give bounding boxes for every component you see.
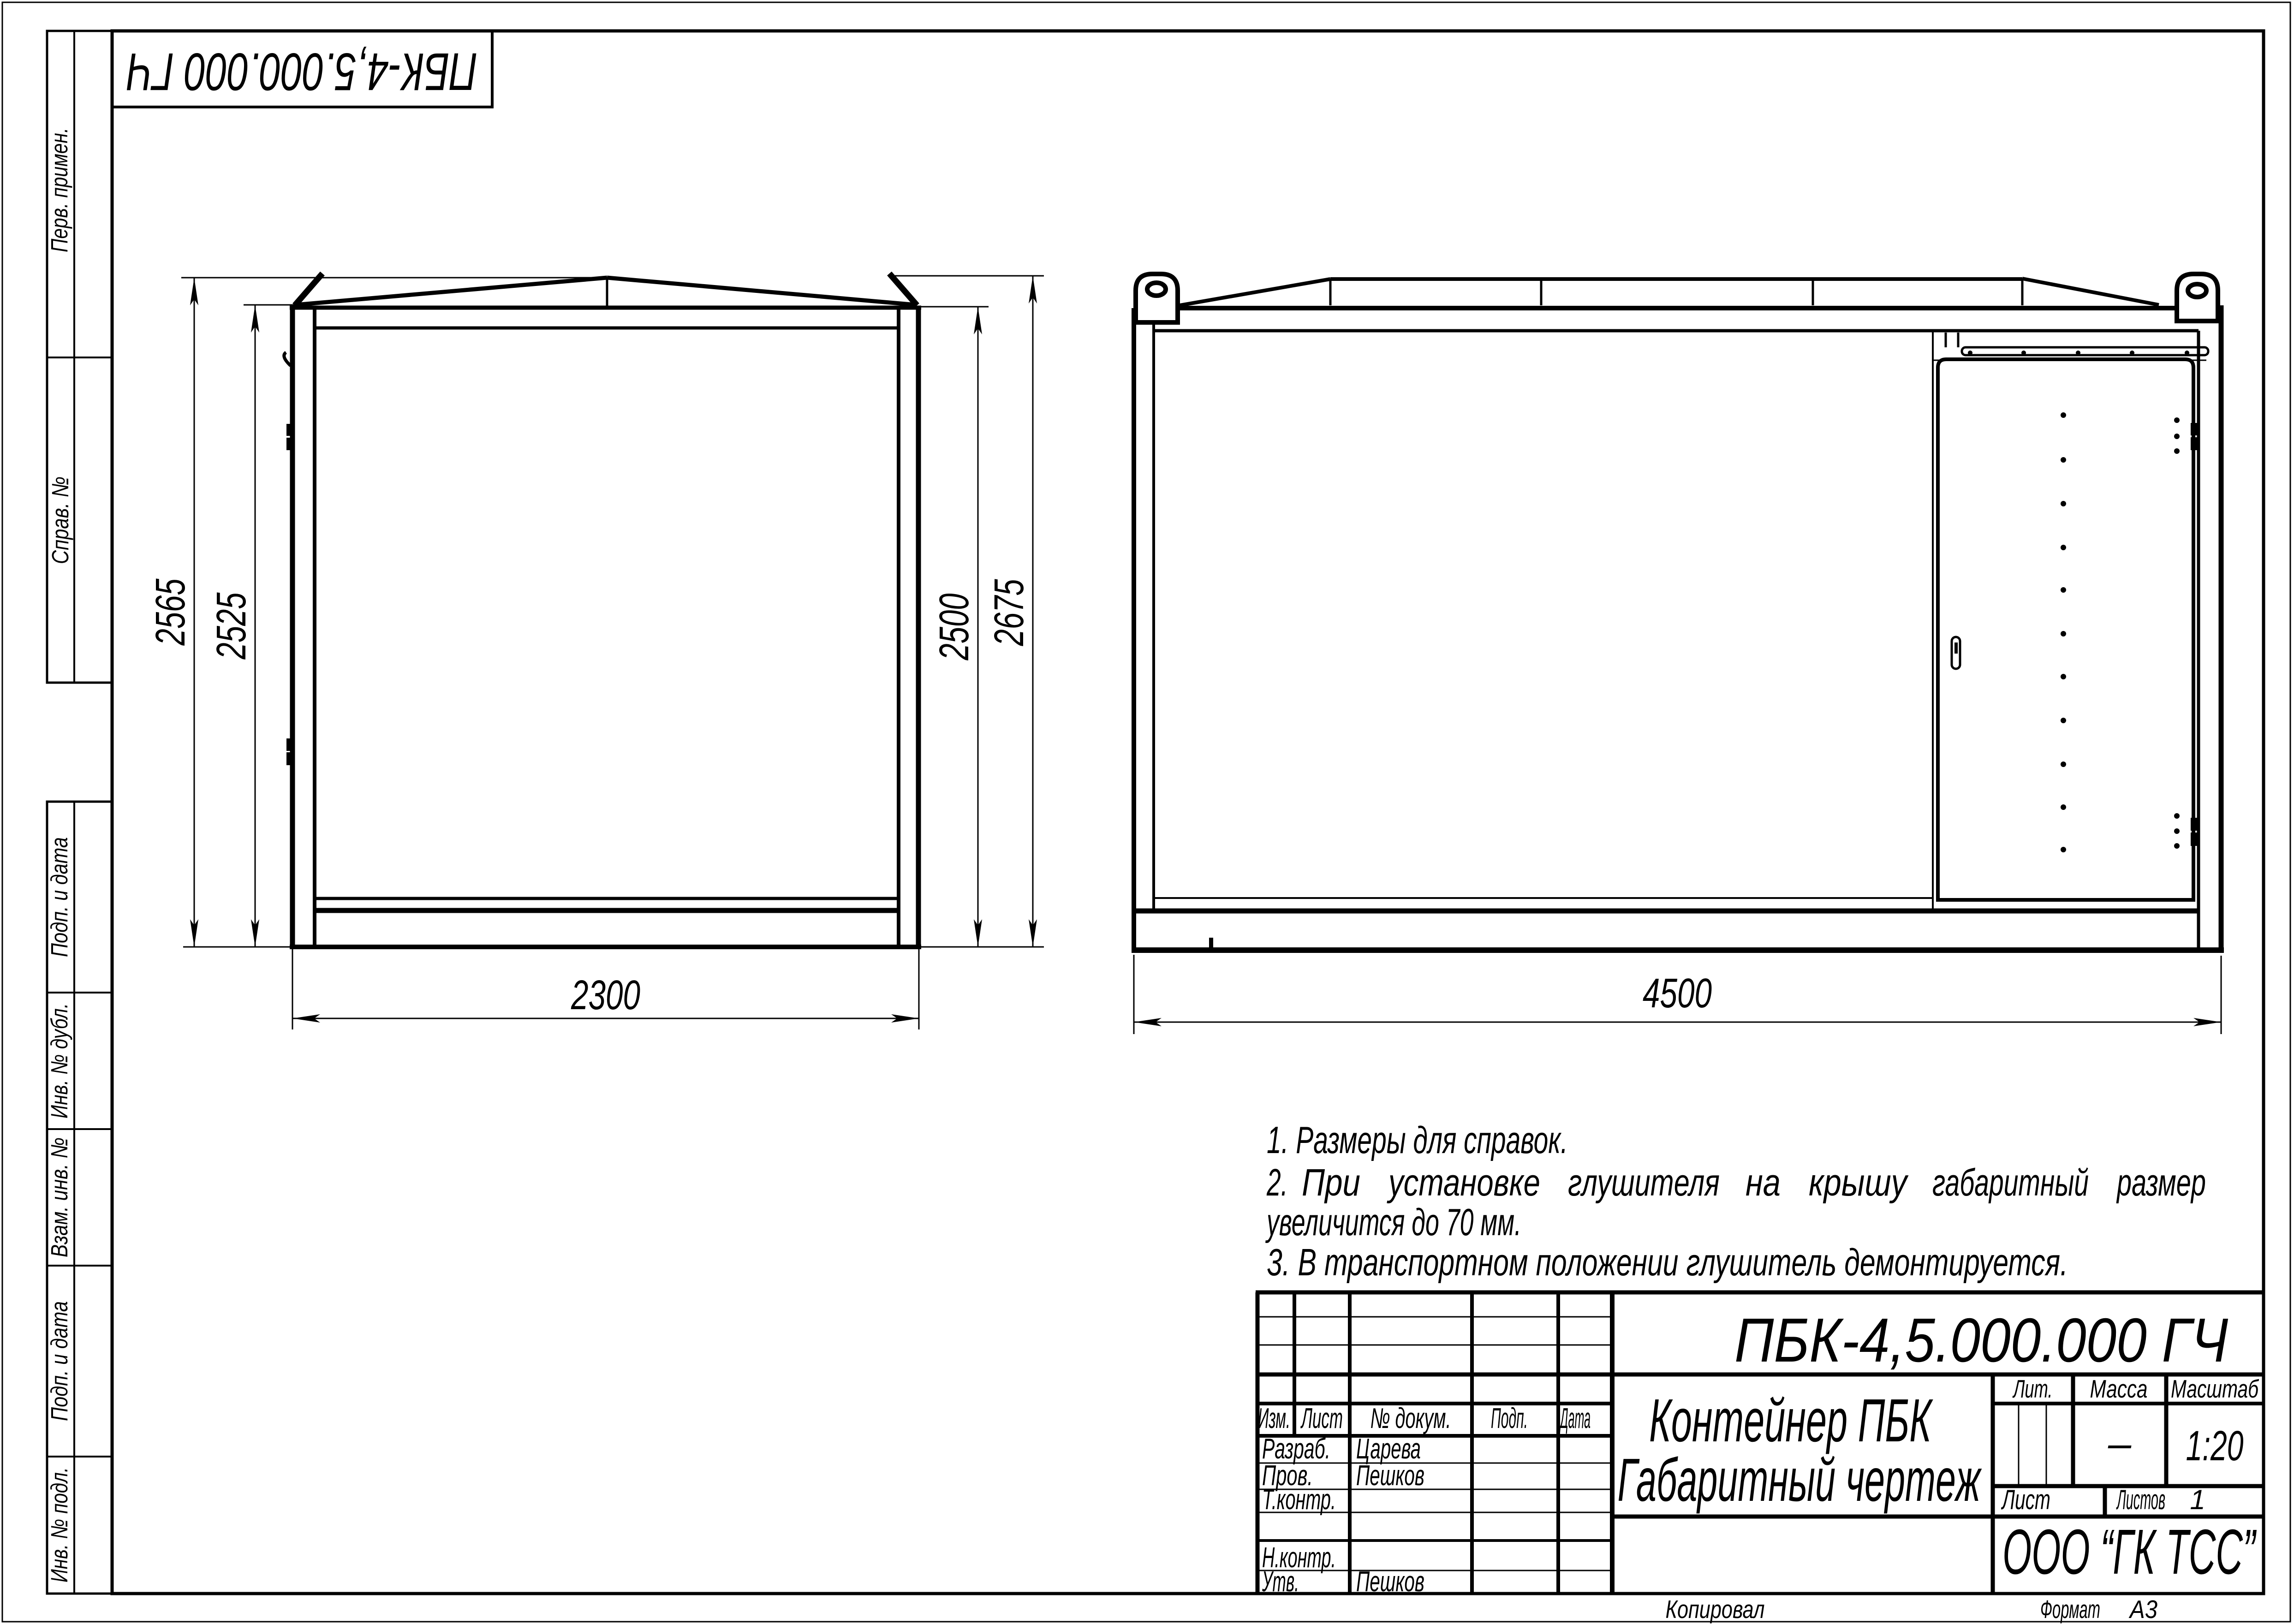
svg-text:крышу: крышу bbox=[1809, 1161, 1909, 1204]
svg-text:3. В транспортном положении гл: 3. В транспортном положении глушитель де… bbox=[1267, 1241, 2068, 1284]
svg-text:2675: 2675 bbox=[986, 579, 1032, 646]
svg-text:1:20: 1:20 bbox=[2186, 1422, 2244, 1469]
svg-text:Пешков: Пешков bbox=[1356, 1566, 1424, 1598]
svg-text:Листов: Листов bbox=[2116, 1484, 2165, 1515]
svg-text:2300: 2300 bbox=[571, 972, 640, 1018]
svg-text:–: – bbox=[2108, 1421, 2132, 1467]
svg-text:2.: 2. bbox=[1266, 1161, 1288, 1204]
svg-text:Масштаб: Масштаб bbox=[2171, 1374, 2259, 1403]
svg-text:ПБК-4,5.000.000 ГЧ: ПБК-4,5.000.000 ГЧ bbox=[127, 42, 477, 101]
svg-text:А3: А3 bbox=[2128, 1595, 2157, 1624]
svg-text:Т.контр.: Т.контр. bbox=[1262, 1484, 1336, 1516]
svg-text:1. Размеры для справок.: 1. Размеры для справок. bbox=[1267, 1118, 1568, 1161]
svg-text:Подп. и дата: Подп. и дата bbox=[46, 1301, 72, 1421]
svg-text:4500: 4500 bbox=[1643, 970, 1712, 1017]
svg-text:Подп.: Подп. bbox=[1491, 1403, 1528, 1434]
svg-text:При: При bbox=[1302, 1161, 1360, 1204]
svg-text:Перв. примен.: Перв. примен. bbox=[46, 128, 72, 252]
svg-text:размер: размер bbox=[2116, 1161, 2206, 1204]
svg-text:Изм.: Изм. bbox=[1258, 1403, 1290, 1434]
svg-text:Лит.: Лит. bbox=[2013, 1374, 2053, 1403]
svg-text:2500: 2500 bbox=[931, 594, 977, 661]
svg-text:Масса: Масса bbox=[2090, 1374, 2148, 1403]
svg-text:на: на bbox=[1746, 1161, 1781, 1204]
svg-text:Утв.: Утв. bbox=[1262, 1566, 1299, 1598]
svg-text:№ докум.: № докум. bbox=[1370, 1403, 1451, 1434]
svg-text:ПБК-4,5.000.000 ГЧ: ПБК-4,5.000.000 ГЧ bbox=[1734, 1305, 2228, 1375]
svg-text:Копировал: Копировал bbox=[1666, 1595, 1765, 1624]
svg-text:2525: 2525 bbox=[209, 592, 255, 660]
svg-text:Справ. №: Справ. № bbox=[47, 476, 73, 564]
svg-text:Взам. инв. №: Взам. инв. № bbox=[46, 1137, 72, 1257]
svg-text:2565: 2565 bbox=[148, 578, 194, 646]
svg-text:Габаритный чертеж: Габаритный чертеж bbox=[1618, 1446, 1982, 1514]
svg-text:установке: установке bbox=[1387, 1161, 1540, 1204]
svg-text:увеличится до 70 мм.: увеличится до 70 мм. bbox=[1265, 1201, 1521, 1243]
svg-text:Инв. № подл.: Инв. № подл. bbox=[46, 1467, 72, 1582]
svg-text:Формат: Формат bbox=[2040, 1595, 2100, 1624]
svg-text:глушителя: глушителя bbox=[1568, 1161, 1720, 1204]
svg-text:Инв. № дубл.: Инв. № дубл. bbox=[46, 1003, 72, 1118]
svg-text:1: 1 bbox=[2190, 1484, 2205, 1515]
svg-text:Пешков: Пешков bbox=[1356, 1460, 1424, 1492]
svg-text:Лист: Лист bbox=[2001, 1484, 2050, 1515]
svg-text:Лист: Лист bbox=[1300, 1403, 1343, 1434]
svg-text:Дата: Дата bbox=[1559, 1403, 1591, 1434]
svg-text:Контейнер ПБК: Контейнер ПБК bbox=[1649, 1386, 1933, 1454]
svg-text:ООО “ГК ТСС”: ООО “ГК ТСС” bbox=[2002, 1517, 2257, 1588]
svg-text:Подп. и дата: Подп. и дата bbox=[46, 837, 72, 957]
svg-text:габаритный: габаритный bbox=[1932, 1161, 2089, 1204]
